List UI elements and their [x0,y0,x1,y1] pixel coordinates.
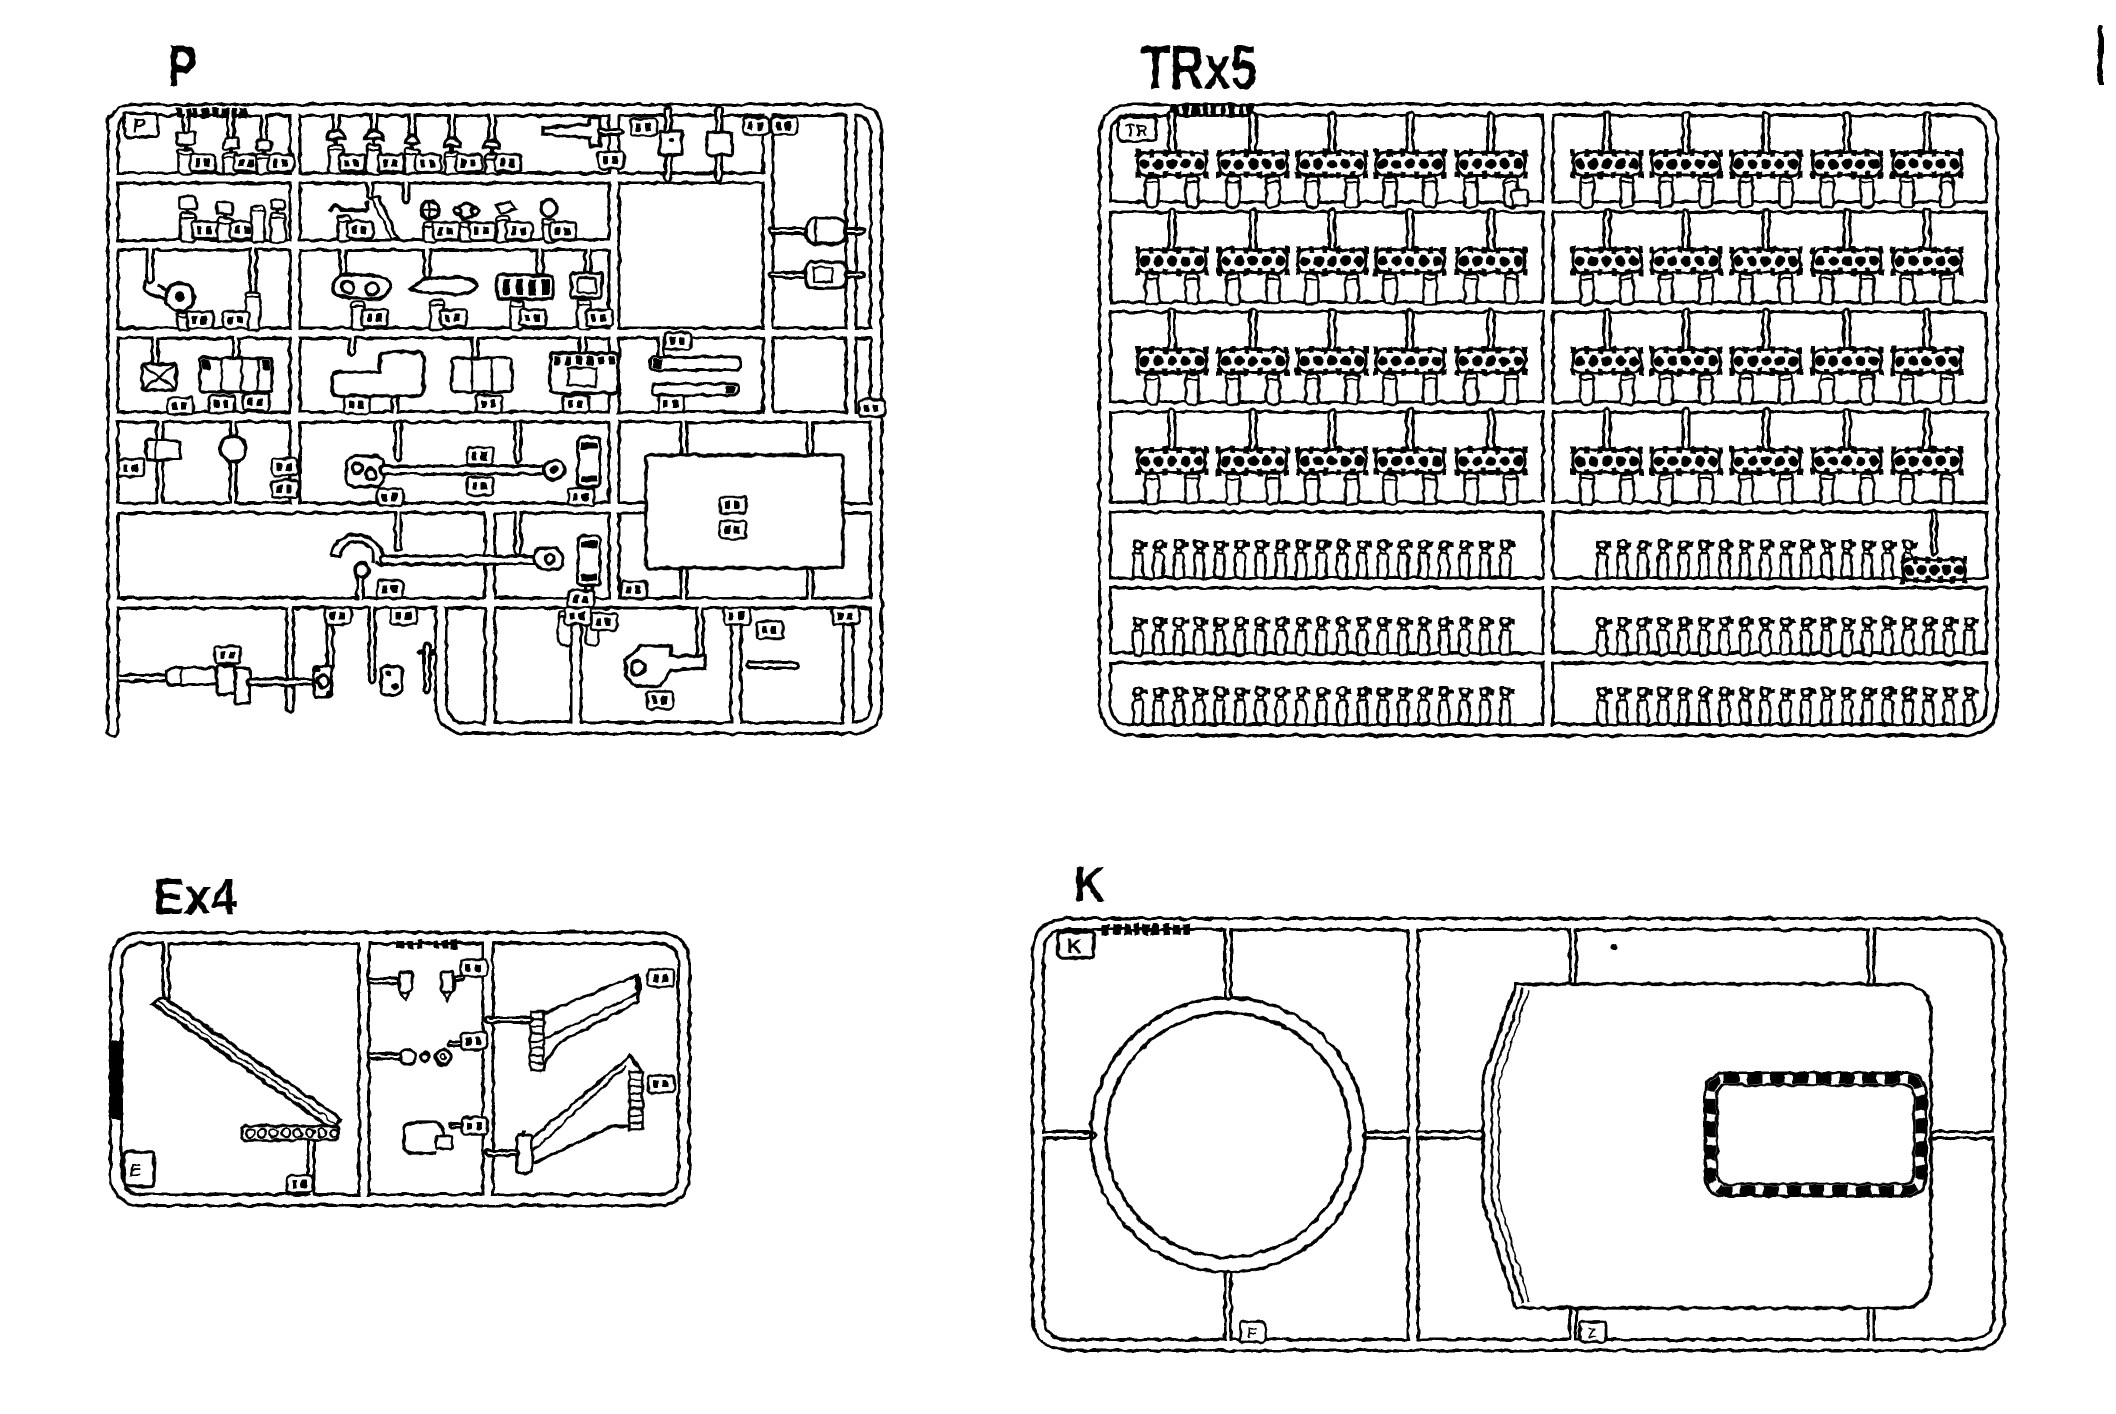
svg-text:K: K [1067,936,1082,958]
svg-text:K: K [1074,856,1105,912]
svg-text:TRx5: TRx5 [1141,34,1257,103]
svg-text:Z: Z [1587,1325,1596,1342]
svg-text:P: P [168,33,197,100]
svg-text:E: E [130,1161,141,1180]
svg-text:Ex4: Ex4 [153,868,238,925]
svg-text:TR: TR [1125,121,1148,140]
svg-text:P: P [133,116,146,137]
svg-text:F: F [1247,1325,1256,1342]
